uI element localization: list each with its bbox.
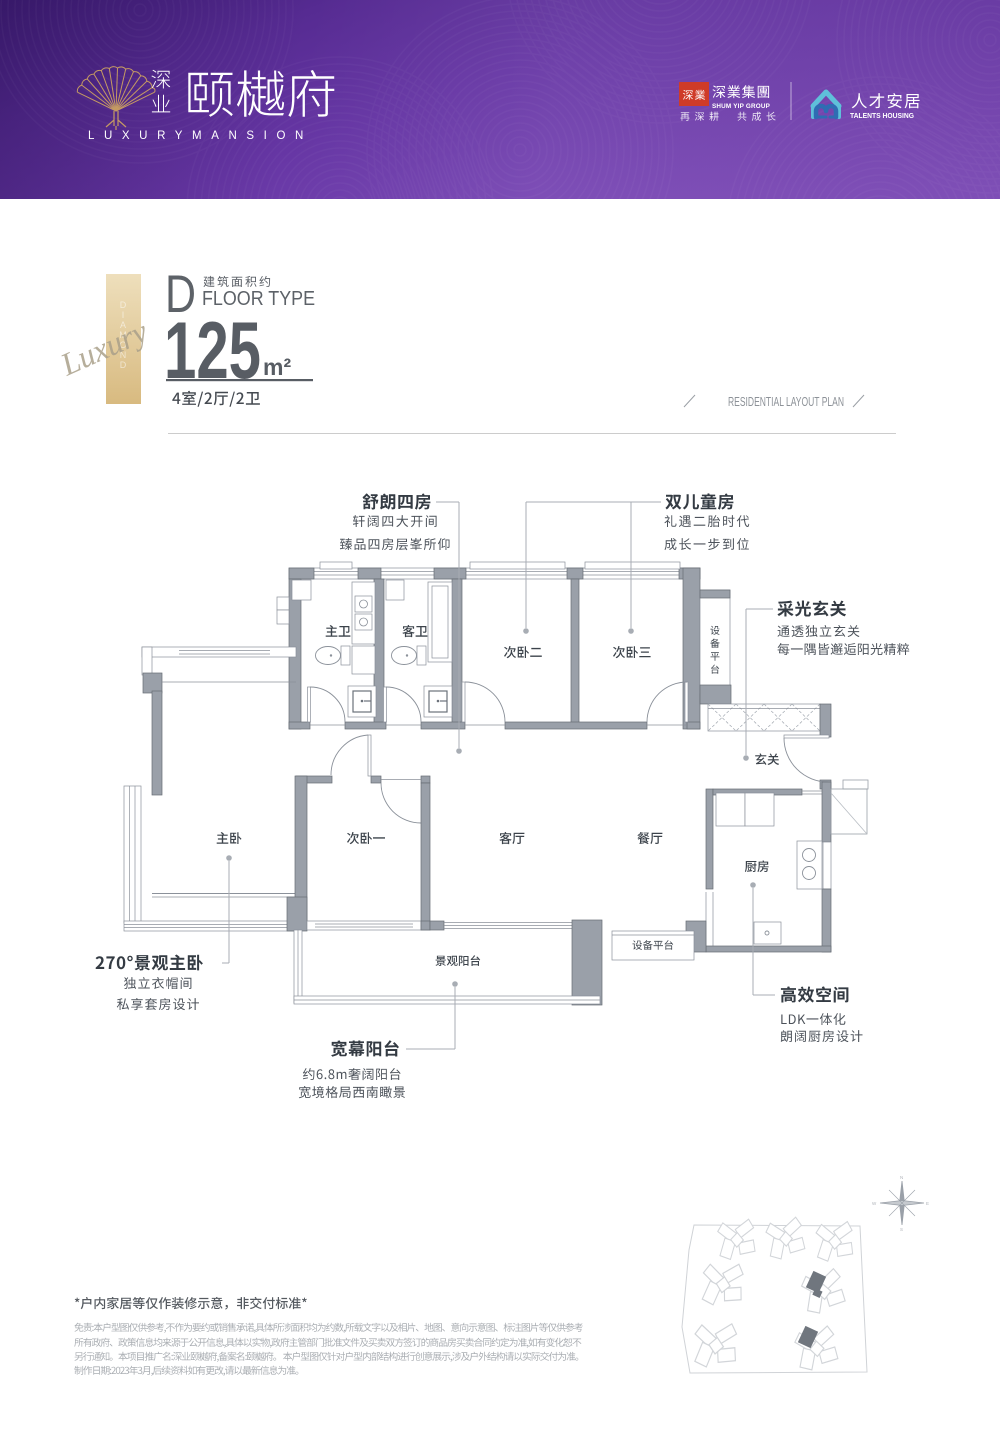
svg-text:SHUM YIP GROUP: SHUM YIP GROUP — [712, 103, 770, 110]
svg-text:RESIDENTIAL LAYOUT PLAN: RESIDENTIAL LAYOUT PLAN — [728, 395, 844, 409]
svg-text:N: N — [900, 1175, 903, 1180]
svg-text:W: W — [872, 1201, 877, 1206]
svg-text:125: 125 — [164, 306, 261, 396]
svg-text:m²: m² — [263, 354, 291, 380]
svg-text:S: S — [900, 1227, 903, 1232]
svg-text:TALENTS HOUSING: TALENTS HOUSING — [850, 111, 914, 120]
svg-text:LUXURYMANSION: LUXURYMANSION — [88, 130, 313, 142]
svg-text:E: E — [926, 1201, 929, 1206]
